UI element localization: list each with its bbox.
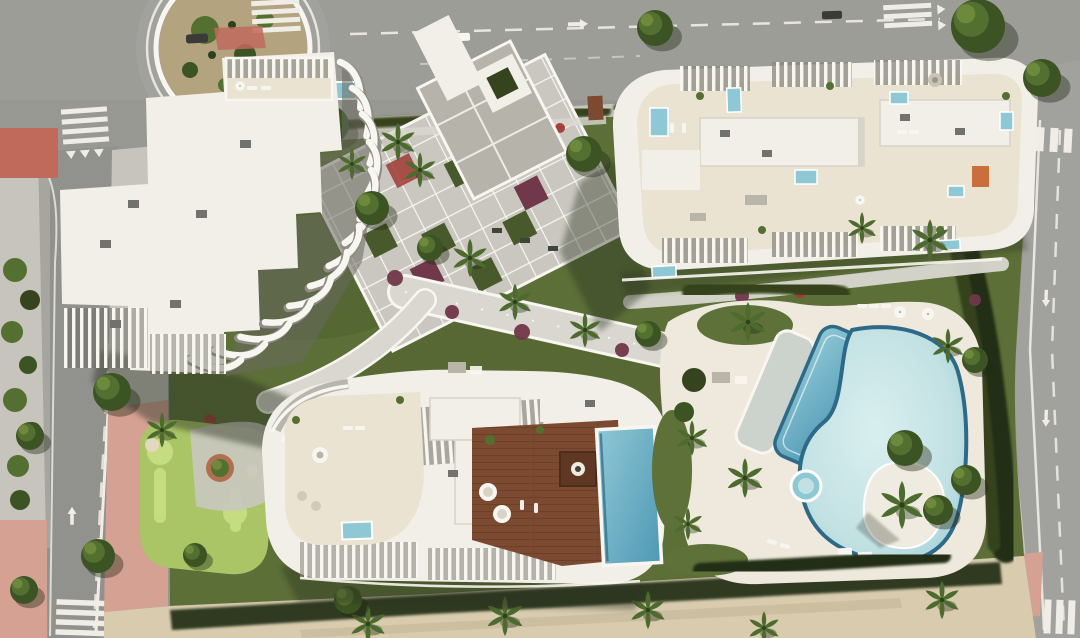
crosswalk-right-top [1035,127,1072,153]
building-c [262,370,668,610]
building-c-terrace-pool [342,521,373,539]
building-c-terrace [285,392,424,545]
red-pavement-patch [0,128,58,178]
building-c-rooftop-pool [597,427,662,566]
site-plan-canvas [0,0,1080,638]
crosswalk-right-bottom [1043,599,1075,634]
aerial-render [0,0,1080,638]
building-a-terrace [226,58,332,100]
